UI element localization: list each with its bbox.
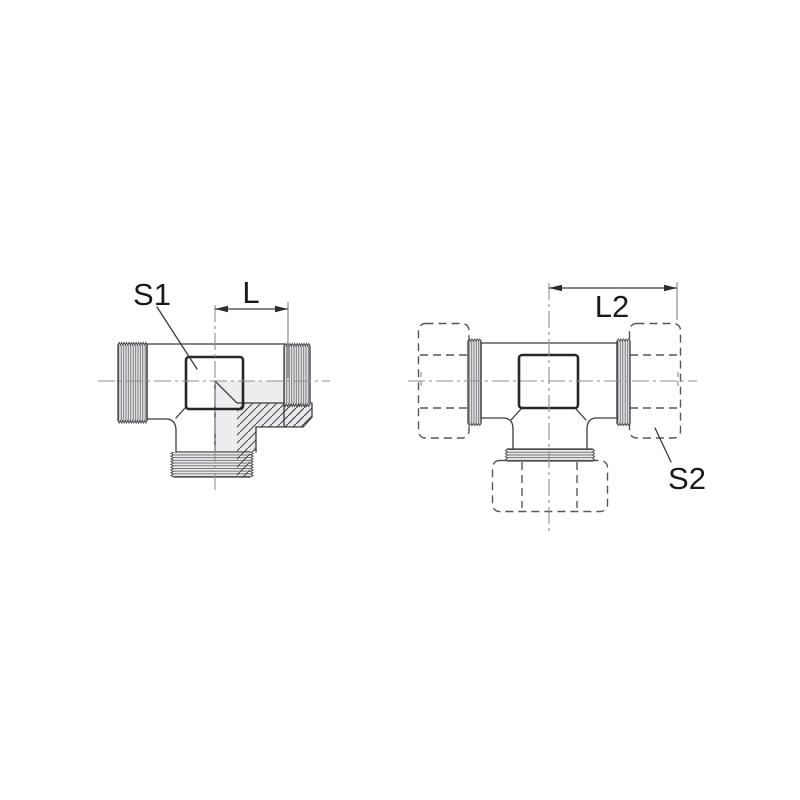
dimension-l: L (215, 275, 288, 378)
label-l2: L2 (595, 289, 629, 324)
s2-leader-line (655, 428, 671, 462)
corner-flare (176, 408, 185, 418)
bottom-thread (171, 452, 253, 477)
label-s1: S1 (133, 277, 171, 312)
label-s2: S2 (668, 461, 706, 496)
dimension-l2: L2 (549, 282, 677, 324)
left-view-sectioned-tee: L S1 (98, 275, 330, 492)
right-view-tee-with-nuts: L2 S2 (408, 282, 706, 531)
label-l: L (242, 275, 259, 310)
drawing-canvas: L S1 (0, 0, 800, 800)
s1-leader-line (157, 307, 197, 369)
tee-fitting-technical-drawing: L S1 (0, 0, 800, 800)
left-thread (118, 343, 147, 424)
bottom-nut-phantom (493, 461, 608, 512)
